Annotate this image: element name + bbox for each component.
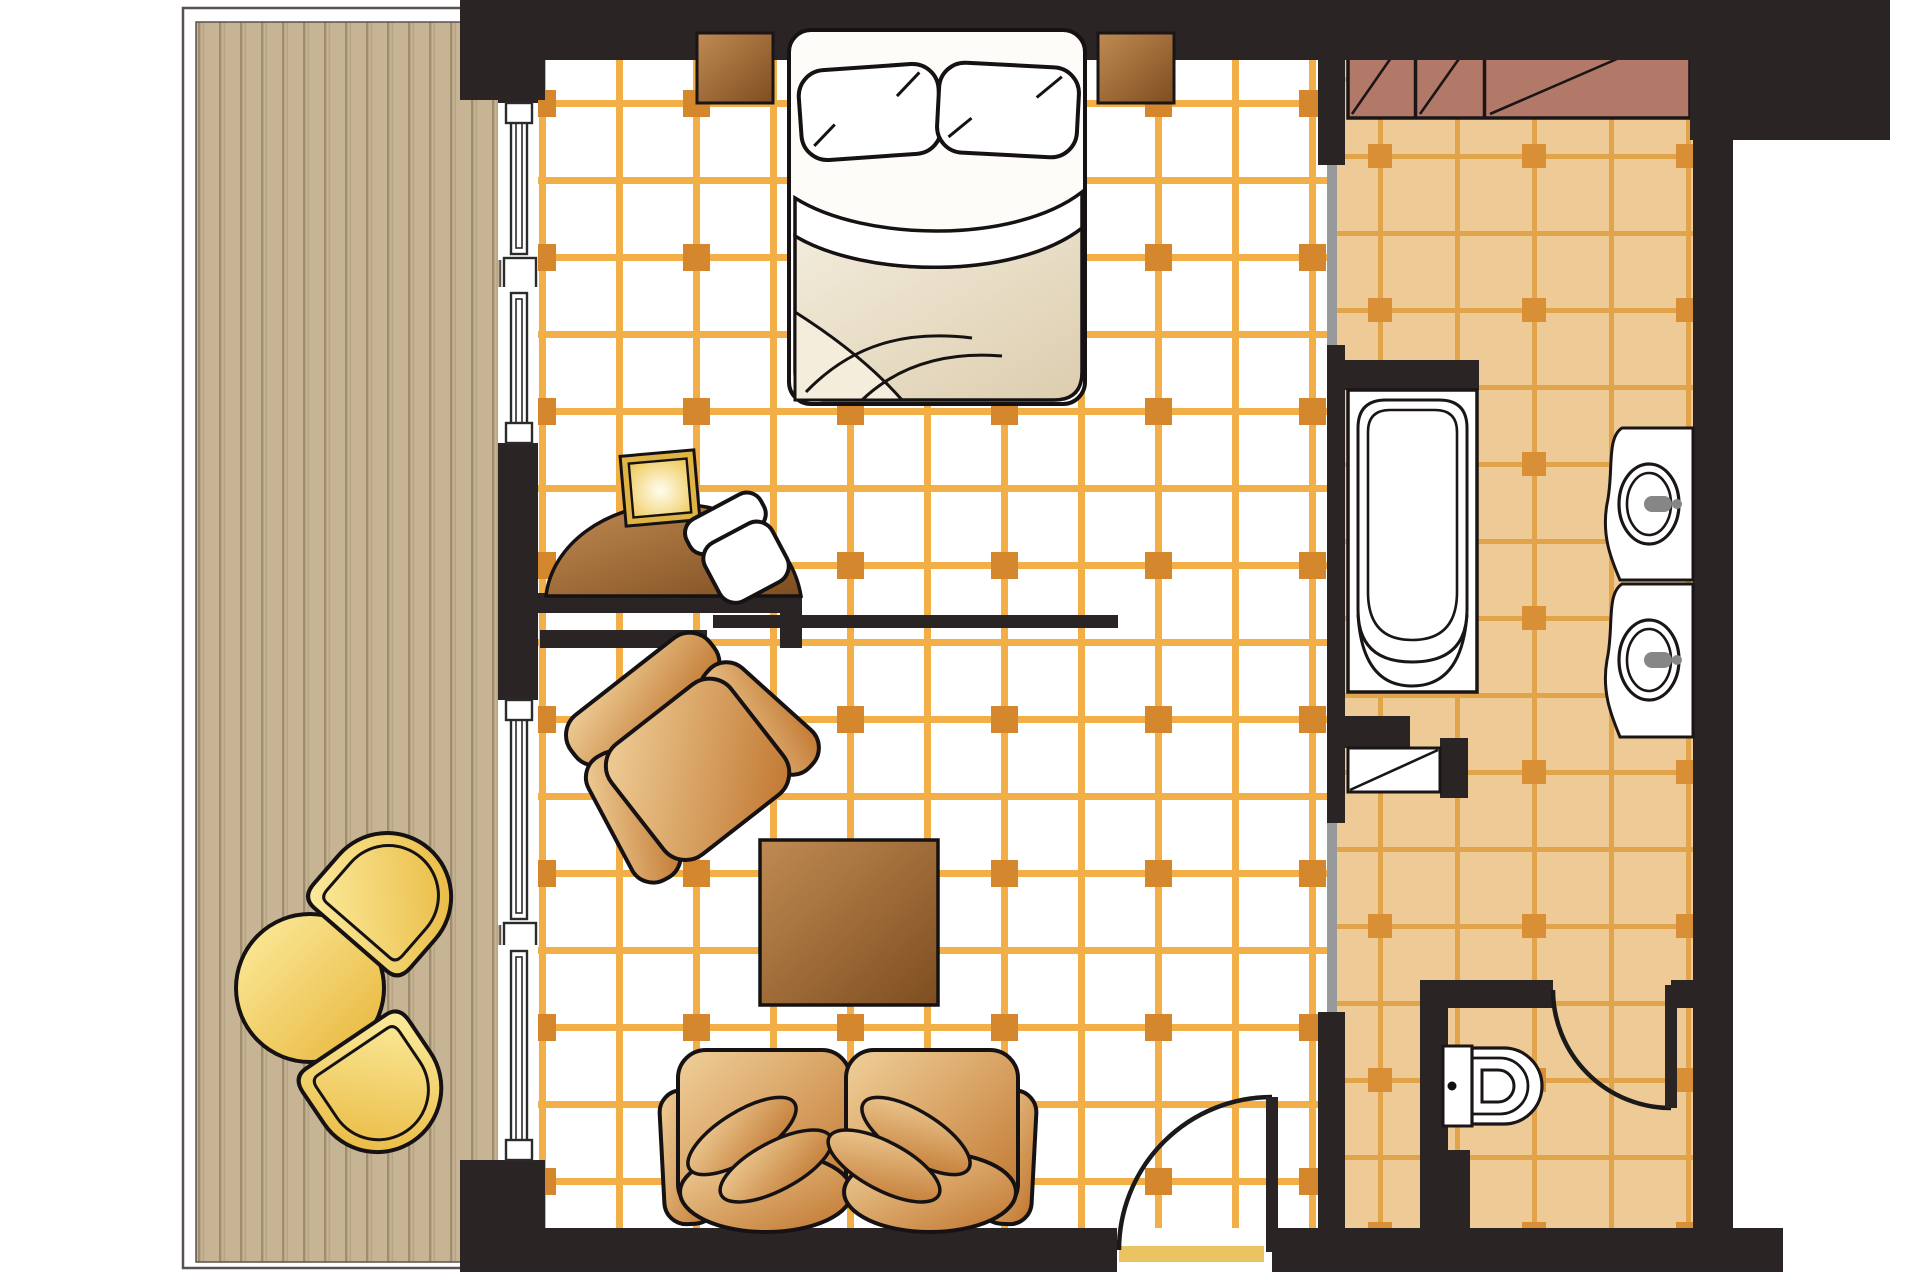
wall-left-middle — [498, 443, 538, 700]
toilet — [1443, 1046, 1542, 1126]
wall-left-lower — [498, 1160, 538, 1228]
wall-column-middle — [1327, 345, 1345, 823]
window-left-3 — [498, 700, 538, 925]
toilet-button — [1448, 1082, 1457, 1091]
window-left-2 — [498, 287, 538, 443]
wall-shelf-left — [1330, 716, 1410, 748]
faucet-icon — [1644, 496, 1672, 512]
faucet-icon — [1672, 655, 1682, 665]
bathtub — [1348, 390, 1477, 692]
wall-left-upper — [498, 60, 538, 103]
window-cap — [506, 1140, 532, 1160]
faucet-icon — [1672, 499, 1682, 509]
desk-lamp — [620, 450, 700, 526]
washbasin-upper — [1605, 428, 1693, 580]
toilet-tank — [1443, 1046, 1472, 1126]
wall-column-upper — [1318, 60, 1345, 165]
pillow-left — [797, 62, 943, 162]
glass-partition-upper — [1327, 165, 1337, 345]
window-mullion-block — [504, 258, 536, 290]
window-mullion-block — [504, 923, 536, 947]
faucet-icon — [1644, 652, 1672, 668]
window-cap — [506, 423, 532, 443]
wall-corner-top-right — [1690, 0, 1890, 140]
window-cap — [506, 700, 532, 720]
washbasin-lower — [1605, 584, 1693, 737]
door-leaf — [1266, 1097, 1278, 1252]
nightstand-left — [697, 33, 773, 103]
window-left-4 — [498, 945, 538, 1160]
glass-partition-lower — [1327, 823, 1337, 1012]
sofa-two-seat — [659, 1050, 1038, 1232]
floor-plan-canvas — [0, 0, 1920, 1280]
sliding-door-panel — [713, 615, 1118, 628]
coffee-table — [760, 840, 938, 1005]
floor-plan — [0, 0, 1920, 1280]
wall-column-lower — [1318, 1012, 1345, 1228]
wall-wc-top — [1420, 980, 1553, 1008]
wall-shelf-right — [1440, 738, 1468, 798]
wall-right — [1693, 140, 1733, 1272]
door-leaf — [1665, 985, 1677, 1108]
wall-wc-step — [1420, 1150, 1470, 1228]
wall-bottom-right-segment — [1272, 1228, 1783, 1272]
linen-shelf — [1348, 748, 1440, 792]
wall-bottom-left-segment — [498, 1228, 1117, 1272]
nightstand-right — [1098, 33, 1174, 103]
door-threshold — [1119, 1246, 1264, 1262]
window-cap — [506, 103, 532, 123]
wall-above-bathtub — [1344, 360, 1479, 390]
pillow-right — [936, 61, 1081, 158]
window-left-1 — [498, 103, 538, 260]
double-bed — [789, 30, 1085, 404]
